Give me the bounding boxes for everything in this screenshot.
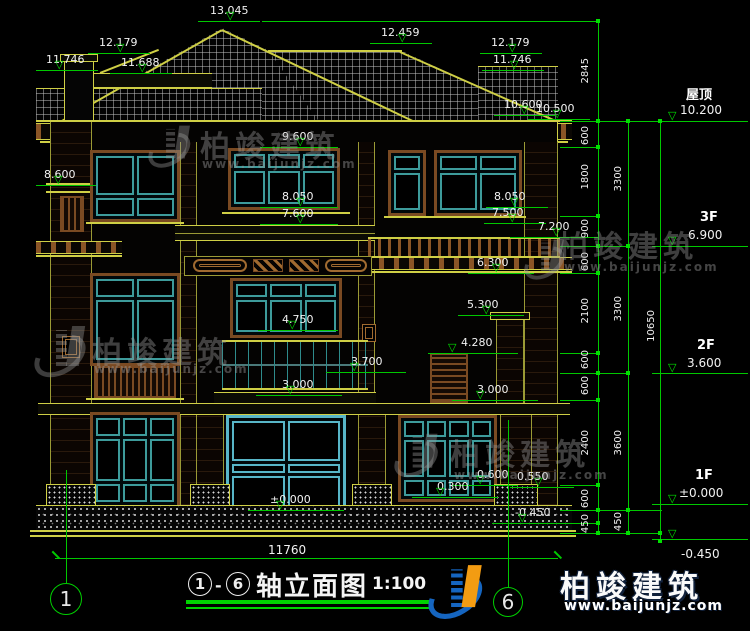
elevation-value: 4.750 (282, 314, 314, 326)
dim-tick (596, 19, 600, 23)
watermark-logo-icon (394, 432, 448, 480)
elevation-triangle: ▽ (288, 320, 296, 330)
floor-level-line (652, 504, 748, 505)
elevation-line (428, 353, 518, 354)
chain-dimension: 10650 (646, 310, 657, 342)
floor-level-triangle: ▽ (668, 111, 676, 121)
frieze-ornament-band (184, 256, 372, 276)
dim-tick (658, 531, 662, 535)
axis-line-1 (66, 470, 67, 583)
floor-tag: 1F (695, 468, 713, 483)
pilaster-vent (60, 196, 84, 232)
elevation-triangle: ▽ (116, 43, 124, 53)
dim-tick (596, 521, 600, 525)
title-axis-circle-6: 6 (226, 572, 250, 596)
window-2f-center (230, 278, 342, 338)
dim-tick (626, 371, 630, 375)
watermark-logo-icon (148, 124, 200, 170)
elevation-triangle: ▽ (553, 109, 561, 119)
window-3f-mid-right (388, 150, 426, 216)
dim-tick (626, 119, 630, 123)
elevation-triangle: ▽ (350, 362, 358, 372)
dim-tick (596, 214, 600, 218)
floor-elevation-value: 3.600 (687, 356, 721, 370)
dim-tick (596, 145, 600, 149)
elevation-triangle: ▽ (398, 33, 406, 43)
elevation-triangle: ▽ (508, 213, 516, 223)
elevation-triangle: ▽ (286, 385, 294, 395)
title-scale: 1:100 (372, 574, 426, 594)
elevation-line (258, 330, 338, 331)
dim-tick (596, 508, 600, 512)
elevation-line (412, 497, 498, 498)
elevation-line (452, 400, 538, 401)
left-wing-fascia (92, 73, 212, 88)
elevation-line (36, 185, 96, 186)
dim-tick (596, 351, 600, 355)
dim-tick (596, 119, 600, 123)
elevation-triangle: ▽ (492, 263, 500, 273)
center-fascia (175, 225, 375, 241)
floor-tag: 2F (697, 338, 715, 353)
elevation-triangle: ▽ (510, 60, 518, 70)
elevation-triangle: ▽ (296, 214, 304, 224)
elevation-triangle: ▽ (226, 11, 234, 21)
watermark-logo-icon (34, 324, 98, 380)
floor-tag: 屋顶 (686, 84, 712, 103)
elevation-line (248, 510, 344, 511)
floor-elevation-value: 10.200 (680, 103, 722, 117)
floor-level-line (652, 121, 748, 122)
elevation-triangle: ▽ (518, 513, 526, 523)
elevation-line (256, 395, 342, 396)
floor-level-triangle: ▽ (668, 494, 676, 504)
total-width-dim: 11760 (268, 543, 306, 557)
plinth (36, 505, 572, 531)
dim-tick (626, 508, 630, 512)
chain-dimension: 600 (580, 376, 591, 395)
elevation-triangle: ▽ (508, 43, 516, 53)
pier-a (180, 142, 197, 505)
elevation-triangle: ▽ (276, 500, 284, 510)
elevation-line (36, 70, 98, 71)
width-dim-line (55, 558, 558, 559)
chain-dimension: 2100 (580, 298, 591, 323)
elevation-line (492, 523, 568, 524)
elevation-triangle: ▽ (296, 197, 304, 207)
chain-dimension: 600 (580, 126, 591, 145)
elevation-triangle: ▽ (54, 175, 62, 185)
chain-dimension: 600 (580, 489, 591, 508)
elevation-line (458, 315, 524, 316)
dim-tick (658, 539, 662, 543)
dim-tick (596, 531, 600, 535)
dim-tick (596, 398, 600, 402)
dim-tick (596, 483, 600, 487)
dim-tick (658, 119, 662, 123)
window-1f-left (90, 412, 180, 508)
elevation-triangle: ▽ (482, 305, 490, 315)
elevation-value: 4.280 (461, 337, 493, 349)
floor-level-line (652, 539, 748, 540)
floor-elevation-value: ±0.000 (679, 486, 723, 500)
elevation-line (326, 372, 406, 373)
elevation-value: 11.746 (46, 54, 85, 66)
floor-tag: 3F (700, 210, 718, 225)
elevation-triangle: ▽ (55, 60, 63, 70)
dim-tick (596, 371, 600, 375)
elevation-triangle: ▽ (448, 343, 456, 353)
title-text: 轴立面图 (256, 566, 368, 603)
chain-dimension: 3600 (613, 430, 624, 455)
elevation-triangle: ▽ (520, 105, 528, 115)
floor-level-triangle: ▽ (668, 529, 676, 539)
dim-tick (626, 531, 630, 535)
elevation-triangle: ▽ (436, 487, 444, 497)
brand-logo-icon (428, 563, 495, 622)
bay-pillar-cap (490, 312, 530, 320)
title-axis-circle-1: 1 (188, 572, 212, 596)
left-mini-cornice (36, 241, 122, 254)
chain-dimension: 1800 (580, 164, 591, 189)
floor-level-triangle: ▽ (668, 363, 676, 373)
floor-elevation-value: -0.450 (681, 547, 720, 561)
axis-bubble-1: 1 (50, 583, 82, 615)
elevation-line (510, 487, 574, 488)
chain-dimension: 450 (580, 514, 591, 533)
floor-level-line (652, 373, 748, 374)
elevation-triangle: ▽ (138, 63, 146, 73)
louver-2f-right (430, 353, 468, 403)
chain-dimension: 450 (613, 512, 624, 531)
elevation-triangle: ▽ (476, 390, 484, 400)
chain-dimension: 600 (580, 350, 591, 369)
chain-dimension: 2845 (580, 58, 591, 83)
chain-dimension: 3300 (613, 166, 624, 191)
brand-url: www.baijunjz.com (564, 598, 723, 614)
chain-dimension: 3300 (613, 296, 624, 321)
axis-bubble-6: 6 (493, 587, 523, 617)
cad-elevation-drawing: 1 6 11760 13.045▽12.459▽12.179▽11.746▽11… (0, 0, 750, 631)
